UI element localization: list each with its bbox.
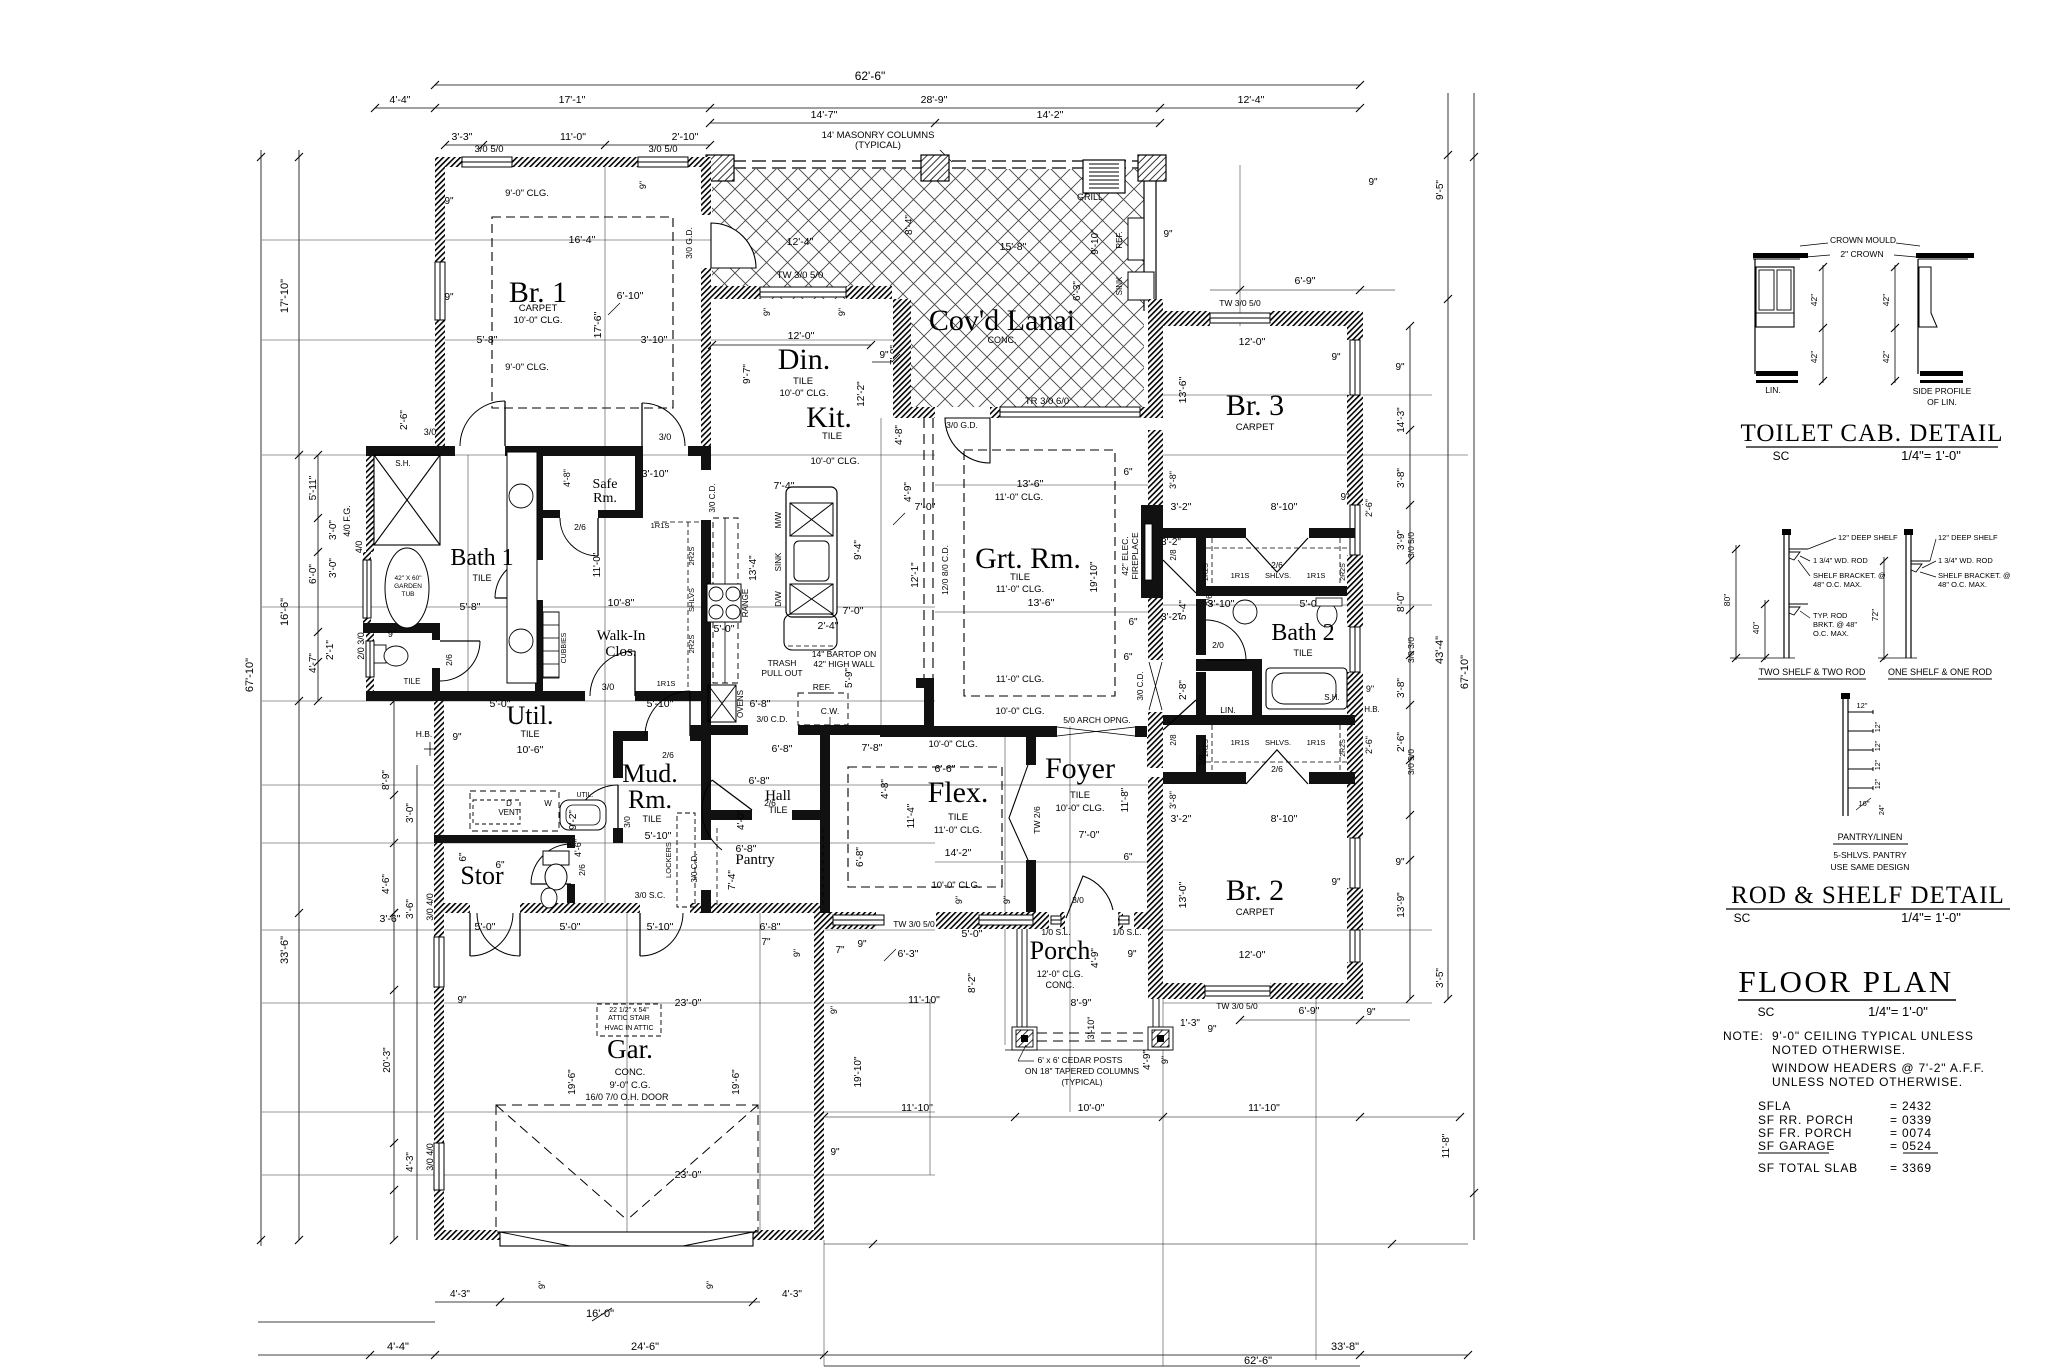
- svg-text:5'-0": 5'-0": [962, 928, 983, 940]
- svg-text:14'-3": 14'-3": [1396, 407, 1407, 433]
- svg-text:4'-3": 4'-3": [405, 1152, 416, 1172]
- svg-text:43'-4": 43'-4": [1434, 636, 1446, 664]
- svg-text:3/0 4/0: 3/0 4/0: [425, 893, 435, 921]
- svg-text:11'-0" CLG.: 11'-0" CLG.: [934, 825, 982, 836]
- svg-text:7": 7": [761, 937, 771, 948]
- svg-text:12'-0" CLG.: 12'-0" CLG.: [1037, 969, 1083, 979]
- svg-text:12'-2": 12'-2": [856, 381, 867, 407]
- svg-text:4'-8": 4'-8": [880, 779, 891, 799]
- svg-text:4'-6": 4'-6": [381, 874, 392, 894]
- svg-text:6": 6": [1123, 652, 1133, 663]
- svg-text:SHLVS.: SHLVS.: [1265, 571, 1291, 580]
- svg-text:42" X 60": 42" X 60": [394, 575, 422, 582]
- svg-text:Flex.: Flex.: [928, 776, 989, 809]
- svg-text:9": 9": [954, 896, 964, 904]
- svg-text:9": 9": [388, 629, 396, 639]
- svg-text:9": 9": [1163, 229, 1173, 240]
- svg-text:67'-10": 67'-10": [244, 658, 256, 692]
- svg-text:2R2S: 2R2S: [1203, 563, 1210, 581]
- svg-text:PULL OUT: PULL OUT: [761, 668, 802, 678]
- svg-text:TW 3/0 5/0: TW 3/0 5/0: [893, 919, 935, 929]
- svg-text:CUBBIES: CUBBIES: [561, 632, 568, 663]
- svg-text:SHLVS: SHLVS: [687, 588, 696, 612]
- svg-text:6'-0": 6'-0": [308, 564, 319, 584]
- svg-text:12'-1": 12'-1": [910, 562, 921, 588]
- svg-text:3/0 5/0: 3/0 5/0: [1406, 749, 1416, 775]
- svg-text:1R1S: 1R1S: [1231, 571, 1250, 580]
- svg-text:C.W.: C.W.: [821, 706, 839, 716]
- svg-text:Porch: Porch: [1030, 936, 1091, 965]
- svg-text:15'-8": 15'-8": [1000, 241, 1027, 253]
- svg-text:ON 18" TAPERED COLUMNS: ON 18" TAPERED COLUMNS: [1025, 1066, 1140, 1076]
- svg-text:4/0: 4/0: [354, 541, 364, 554]
- svg-text:= 0524: = 0524: [1890, 1139, 1932, 1153]
- svg-text:6": 6": [495, 860, 505, 871]
- svg-text:W: W: [544, 799, 552, 808]
- svg-text:TWO SHELF & TWO ROD: TWO SHELF & TWO ROD: [1759, 667, 1866, 677]
- svg-text:CARPET: CARPET: [1236, 907, 1275, 918]
- svg-text:5'-0": 5'-0": [560, 921, 581, 933]
- svg-text:13'-0": 13'-0": [1177, 881, 1189, 908]
- svg-text:16/0 7/0 O.H. DOOR: 16/0 7/0 O.H. DOOR: [585, 1092, 669, 1102]
- svg-text:5'-10": 5'-10": [647, 698, 674, 710]
- svg-text:Mud.: Mud.: [622, 759, 678, 788]
- svg-text:1 3/4" WD. ROD: 1 3/4" WD. ROD: [1938, 556, 1993, 565]
- svg-text:24": 24": [1879, 804, 1886, 815]
- svg-text:42" HIGH WALL: 42" HIGH WALL: [813, 659, 875, 669]
- svg-text:FLOOR PLAN: FLOOR PLAN: [1738, 964, 1953, 999]
- svg-text:ROD & SHELF DETAIL: ROD & SHELF DETAIL: [1731, 882, 2005, 909]
- svg-text:12'-0": 12'-0": [788, 330, 815, 342]
- svg-text:3'-8": 3'-8": [1396, 468, 1407, 488]
- svg-text:24'-6": 24'-6": [631, 1341, 659, 1353]
- svg-text:5/0 ARCH OPNG.: 5/0 ARCH OPNG.: [1063, 715, 1131, 725]
- svg-text:12'-4": 12'-4": [1238, 94, 1265, 106]
- svg-text:GARDEN: GARDEN: [394, 583, 422, 590]
- svg-text:9'-2": 9'-2": [568, 810, 579, 830]
- svg-text:2R2S: 2R2S: [687, 635, 696, 654]
- svg-text:2'-6": 2'-6": [1364, 499, 1374, 517]
- svg-text:9": 9": [879, 350, 889, 361]
- svg-text:3'-10": 3'-10": [1208, 598, 1235, 610]
- svg-text:TILE: TILE: [520, 729, 539, 739]
- svg-text:3'-8": 3'-8": [1168, 471, 1178, 489]
- svg-text:9": 9": [1340, 492, 1350, 503]
- svg-text:5'-8": 5'-8": [477, 334, 498, 346]
- svg-text:6'-8": 6'-8": [749, 775, 770, 787]
- svg-text:3/0 5/0: 3/0 5/0: [1406, 532, 1416, 558]
- svg-text:4'-6": 4'-6": [573, 839, 583, 857]
- svg-text:3/0 C.D.: 3/0 C.D.: [708, 483, 717, 512]
- svg-text:REF.: REF.: [1115, 231, 1124, 248]
- svg-text:33'-6": 33'-6": [279, 936, 291, 964]
- svg-text:1'-3": 1'-3": [1180, 1018, 1200, 1029]
- svg-text:Bath 1: Bath 1: [450, 545, 513, 571]
- svg-text:7'-0": 7'-0": [1079, 829, 1100, 841]
- svg-text:9'-0" C.G.: 9'-0" C.G.: [609, 1080, 650, 1091]
- svg-text:6": 6": [458, 852, 469, 862]
- svg-text:CONC.: CONC.: [615, 1067, 646, 1078]
- svg-text:(TYPICAL): (TYPICAL): [1061, 1077, 1102, 1087]
- svg-text:H.B.: H.B.: [416, 729, 433, 739]
- svg-text:CARPET: CARPET: [519, 303, 558, 314]
- svg-text:14" BARTOP ON: 14" BARTOP ON: [812, 649, 876, 659]
- svg-text:4'-8": 4'-8": [562, 469, 572, 487]
- svg-text:9": 9": [1366, 1007, 1376, 1018]
- svg-text:TILE: TILE: [1293, 648, 1312, 658]
- svg-text:1/4"= 1'-0": 1/4"= 1'-0": [1901, 448, 1961, 463]
- svg-text:48" O.C. MAX.: 48" O.C. MAX.: [1938, 580, 1987, 589]
- svg-text:2R2S: 2R2S: [1203, 739, 1210, 757]
- svg-text:7": 7": [835, 945, 845, 956]
- svg-text:2R2S: 2R2S: [1340, 739, 1347, 757]
- svg-text:67'-10": 67'-10": [1459, 655, 1471, 689]
- svg-text:9": 9": [638, 181, 648, 189]
- svg-text:3'-2": 3'-2": [1171, 813, 1192, 825]
- svg-text:6'-8": 6'-8": [760, 921, 781, 933]
- svg-text:PANTRY/LINEN: PANTRY/LINEN: [1838, 832, 1903, 842]
- svg-text:9": 9": [444, 196, 454, 207]
- svg-text:14'-7": 14'-7": [811, 109, 838, 121]
- svg-text:GRILL: GRILL: [1077, 192, 1103, 202]
- svg-text:WINDOW HEADERS @ 7'-2" A.F.F.: WINDOW HEADERS @ 7'-2" A.F.F.: [1772, 1061, 1985, 1075]
- svg-text:TILE: TILE: [768, 805, 787, 815]
- svg-text:9": 9": [1160, 1056, 1170, 1064]
- svg-text:22 1/2" x 54": 22 1/2" x 54": [609, 1007, 649, 1014]
- svg-text:16'-6": 16'-6": [279, 598, 291, 626]
- svg-text:8'-9": 8'-9": [381, 770, 392, 790]
- svg-text:13'-6": 13'-6": [1177, 376, 1189, 403]
- svg-text:RANGE: RANGE: [741, 589, 750, 617]
- svg-text:2'-1": 2'-1": [325, 640, 336, 660]
- svg-text:Util.: Util.: [507, 701, 554, 730]
- svg-text:10'-0" CLG.: 10'-0" CLG.: [931, 880, 980, 891]
- svg-text:Rm.: Rm.: [628, 785, 672, 814]
- svg-text:11'-8": 11'-8": [1441, 1133, 1452, 1158]
- svg-text:12'-0": 12'-0": [1239, 336, 1266, 348]
- svg-text:4'-4": 4'-4": [387, 1341, 409, 1353]
- svg-text:3'-6": 3'-6": [380, 913, 401, 925]
- svg-text:SIDE PROFILE: SIDE PROFILE: [1913, 386, 1972, 396]
- svg-text:SHELF BRACKET. @: SHELF BRACKET. @: [1938, 571, 2011, 580]
- svg-text:2/6: 2/6: [574, 522, 586, 532]
- svg-text:6' x 6' CEDAR POSTS: 6' x 6' CEDAR POSTS: [1038, 1055, 1123, 1065]
- svg-text:HVAC IN ATTIC: HVAC IN ATTIC: [604, 1025, 653, 1032]
- svg-text:H.B.: H.B.: [1364, 705, 1380, 714]
- svg-text:TW 3/0 5/0: TW 3/0 5/0: [777, 270, 823, 281]
- svg-text:4'-4": 4'-4": [390, 94, 411, 106]
- svg-text:3/0: 3/0: [622, 816, 632, 828]
- svg-text:ONE SHELF & ONE ROD: ONE SHELF & ONE ROD: [1888, 667, 1993, 677]
- svg-text:6'-6": 6'-6": [935, 763, 956, 775]
- svg-text:10'-0" CLG.: 10'-0" CLG.: [1055, 803, 1104, 814]
- svg-text:5'-0": 5'-0": [490, 698, 511, 710]
- svg-text:3'-2": 3'-2": [1171, 501, 1192, 513]
- svg-text:12": 12": [1856, 701, 1867, 710]
- svg-text:TILE: TILE: [404, 677, 421, 686]
- svg-text:9": 9": [857, 939, 867, 950]
- svg-text:Cov'd Lanai: Cov'd Lanai: [929, 304, 1075, 337]
- svg-text:3/0 3/0: 3/0 3/0: [1406, 637, 1416, 663]
- svg-text:3/0 G.D.: 3/0 G.D.: [946, 420, 978, 430]
- svg-text:8'-9": 8'-9": [1071, 997, 1092, 1009]
- svg-text:TRASH: TRASH: [768, 658, 797, 668]
- svg-text:3'-2": 3'-2": [1161, 537, 1181, 548]
- svg-text:SFLA: SFLA: [1758, 1099, 1791, 1113]
- svg-text:10'-0" CLG.: 10'-0" CLG.: [995, 706, 1044, 717]
- svg-text:TW 2/6: TW 2/6: [1032, 806, 1042, 834]
- svg-text:12": 12": [1875, 759, 1882, 770]
- svg-text:9": 9": [452, 732, 462, 743]
- svg-text:6'-3": 6'-3": [898, 948, 919, 960]
- svg-text:9": 9": [1331, 352, 1341, 363]
- svg-text:4'-3": 4'-3": [782, 1289, 802, 1300]
- svg-text:23'-0": 23'-0": [675, 1169, 702, 1181]
- svg-text:OVENS: OVENS: [736, 690, 745, 718]
- svg-text:3/0: 3/0: [1072, 895, 1084, 905]
- svg-text:TILE: TILE: [472, 573, 491, 583]
- svg-text:3/0: 3/0: [659, 432, 672, 442]
- svg-text:3'-8": 3'-8": [1396, 678, 1407, 698]
- svg-text:Hall: Hall: [765, 788, 791, 804]
- svg-text:9": 9": [1002, 896, 1012, 904]
- svg-text:9'-5": 9'-5": [1435, 180, 1446, 200]
- svg-text:16'-4": 16'-4": [569, 234, 596, 246]
- svg-text:9": 9": [837, 308, 847, 316]
- svg-text:17'-10": 17'-10": [279, 279, 291, 313]
- svg-text:SF TOTAL SLAB: SF TOTAL SLAB: [1758, 1161, 1858, 1175]
- svg-text:3/0 C.D.: 3/0 C.D.: [690, 853, 699, 882]
- svg-text:20'-3": 20'-3": [382, 1047, 393, 1073]
- svg-text:13'-6": 13'-6": [1017, 478, 1044, 490]
- svg-text:9'-0" CLG.: 9'-0" CLG.: [505, 188, 549, 199]
- svg-text:4'-9": 4'-9": [1090, 948, 1101, 968]
- svg-text:6'-8": 6'-8": [736, 843, 757, 855]
- svg-text:Rm.: Rm.: [593, 491, 617, 506]
- svg-text:11'-10": 11'-10": [908, 994, 940, 1006]
- svg-text:9": 9": [1366, 684, 1374, 694]
- svg-text:LIN.: LIN.: [1220, 705, 1236, 715]
- svg-text:3'-6": 3'-6": [405, 899, 416, 919]
- svg-text:9": 9": [537, 1281, 547, 1289]
- svg-text:UNLESS NOTED OTHERWISE.: UNLESS NOTED OTHERWISE.: [1772, 1075, 1963, 1089]
- svg-text:9": 9": [762, 308, 772, 316]
- svg-text:6'-9": 6'-9": [1295, 275, 1316, 287]
- svg-text:2/6: 2/6: [577, 864, 587, 876]
- svg-text:4'-7": 4'-7": [308, 653, 319, 673]
- svg-text:3/0 G.D.: 3/0 G.D.: [684, 227, 694, 259]
- svg-text:Gar.: Gar.: [607, 1034, 653, 1064]
- svg-text:= 0339: = 0339: [1890, 1113, 1932, 1127]
- svg-text:SF RR. PORCH: SF RR. PORCH: [1758, 1113, 1854, 1127]
- svg-text:9": 9": [457, 995, 467, 1006]
- svg-text:6'-8": 6'-8": [750, 698, 771, 710]
- svg-text:SC: SC: [1773, 449, 1790, 463]
- svg-text:17'-6": 17'-6": [592, 311, 604, 338]
- svg-text:11'-0" CLG.: 11'-0" CLG.: [995, 492, 1043, 503]
- svg-text:TILE: TILE: [1010, 572, 1030, 583]
- svg-text:2'-8": 2'-8": [1178, 680, 1189, 700]
- svg-text:9'-0" CEILING TYPICAL UNLESS: 9'-0" CEILING TYPICAL UNLESS: [1772, 1029, 1974, 1043]
- svg-text:6'-8": 6'-8": [772, 743, 793, 755]
- svg-text:2/8: 2/8: [1169, 734, 1178, 746]
- svg-text:5'-11": 5'-11": [308, 475, 319, 500]
- svg-text:12": 12": [1875, 740, 1882, 751]
- svg-text:7'-0": 7'-0": [843, 605, 864, 617]
- svg-text:11'-0" CLG.: 11'-0" CLG.: [996, 584, 1044, 595]
- svg-text:REF.: REF.: [813, 682, 831, 692]
- svg-text:3/0 5/0: 3/0 5/0: [648, 144, 677, 155]
- svg-text:11'-0" CLG.: 11'-0" CLG.: [996, 674, 1044, 685]
- svg-text:S.H.: S.H.: [395, 459, 411, 468]
- svg-text:CARPET: CARPET: [1236, 422, 1275, 433]
- svg-text:1/4"= 1'-0": 1/4"= 1'-0": [1901, 910, 1961, 925]
- svg-text:Grt. Rm.: Grt. Rm.: [975, 542, 1081, 575]
- svg-text:72": 72": [1870, 609, 1880, 621]
- svg-text:SHLVS.: SHLVS.: [1265, 738, 1291, 747]
- svg-text:23'-0": 23'-0": [675, 997, 702, 1009]
- svg-text:8'-10": 8'-10": [1271, 501, 1298, 513]
- svg-text:62'-6": 62'-6": [1244, 1355, 1272, 1367]
- svg-text:CONC.: CONC.: [1046, 980, 1075, 990]
- svg-text:3'-10": 3'-10": [642, 468, 669, 480]
- svg-text:Kit.: Kit.: [806, 401, 852, 434]
- svg-text:10'-0": 10'-0": [1078, 1102, 1105, 1114]
- svg-text:6": 6": [1128, 617, 1138, 628]
- svg-text:4'-9": 4'-9": [903, 482, 914, 502]
- svg-text:80": 80": [1722, 594, 1732, 606]
- svg-text:42": 42": [1881, 351, 1891, 363]
- svg-text:3/0: 3/0: [424, 427, 437, 437]
- svg-text:11'-8": 11'-8": [1120, 787, 1131, 812]
- svg-text:Safe: Safe: [593, 477, 618, 492]
- svg-text:4'-3": 4'-3": [450, 1289, 470, 1300]
- svg-text:12'-0": 12'-0": [1239, 949, 1266, 961]
- svg-text:CROWN MOULD: CROWN MOULD: [1830, 235, 1896, 245]
- svg-text:6": 6": [1123, 852, 1133, 863]
- svg-text:OF LIN.: OF LIN.: [1927, 397, 1957, 407]
- svg-text:14'-2": 14'-2": [945, 847, 972, 859]
- svg-text:D/W: D/W: [774, 591, 783, 607]
- svg-text:6": 6": [1123, 467, 1133, 478]
- svg-text:42": 42": [1809, 294, 1819, 306]
- svg-text:10'-0" CLG.: 10'-0" CLG.: [928, 739, 977, 750]
- svg-text:11'-4": 11'-4": [906, 803, 917, 828]
- svg-text:3'-5": 3'-5": [1435, 968, 1446, 988]
- svg-text:SINK: SINK: [1115, 276, 1124, 295]
- svg-text:9": 9": [830, 1147, 840, 1158]
- svg-text:Walk-In: Walk-In: [597, 628, 646, 644]
- svg-text:SF GARAGE: SF GARAGE: [1758, 1139, 1835, 1153]
- svg-text:10'-0" CLG.: 10'-0" CLG.: [513, 315, 562, 326]
- svg-text:LIN.: LIN.: [1765, 385, 1781, 395]
- svg-text:7'-8": 7'-8": [862, 742, 883, 754]
- svg-text:ATTIC STAIR: ATTIC STAIR: [608, 1015, 650, 1022]
- svg-text:12'-4": 12'-4": [787, 236, 814, 248]
- svg-text:3/0 C.D.: 3/0 C.D.: [756, 714, 787, 724]
- svg-text:4'-9": 4'-9": [1142, 1050, 1153, 1070]
- svg-text:12": 12": [1875, 721, 1882, 732]
- svg-text:2'-10": 2'-10": [672, 131, 699, 143]
- svg-text:12" DEEP SHELF: 12" DEEP SHELF: [1938, 533, 1998, 542]
- svg-text:2R2S: 2R2S: [1340, 563, 1347, 581]
- svg-text:9": 9": [1127, 949, 1137, 960]
- svg-text:10'-8": 10'-8": [608, 597, 635, 609]
- svg-text:= 3369: = 3369: [1890, 1161, 1932, 1175]
- svg-text:2/0 3/0: 2/0 3/0: [356, 632, 366, 660]
- svg-text:2'-6": 2'-6": [1364, 736, 1374, 754]
- svg-text:2/6: 2/6: [1271, 764, 1283, 774]
- svg-text:1R1S: 1R1S: [1231, 738, 1250, 747]
- svg-text:6'-8": 6'-8": [855, 847, 866, 867]
- svg-text:Clos.: Clos.: [605, 644, 636, 660]
- svg-text:19'-10": 19'-10": [1089, 561, 1100, 592]
- svg-text:USE SAME DESIGN: USE SAME DESIGN: [1831, 862, 1910, 872]
- svg-text:6'-9": 6'-9": [1299, 1005, 1320, 1017]
- svg-text:TUB: TUB: [402, 591, 415, 598]
- svg-text:5-SHLVS. PANTRY: 5-SHLVS. PANTRY: [1833, 850, 1907, 860]
- svg-text:5'-4": 5'-4": [1178, 600, 1189, 620]
- svg-text:3'-3": 3'-3": [452, 131, 473, 143]
- svg-text:2'-6": 2'-6": [1396, 732, 1407, 752]
- svg-text:19'-10": 19'-10": [853, 1056, 864, 1087]
- svg-text:14'-2": 14'-2": [1037, 109, 1064, 121]
- svg-text:6'-10": 6'-10": [617, 290, 644, 302]
- svg-text:12/0 8/0 C.D.: 12/0 8/0 C.D.: [940, 545, 950, 595]
- svg-text:3/0 5/0: 3/0 5/0: [474, 144, 503, 155]
- svg-text:7'-4": 7'-4": [727, 870, 738, 890]
- svg-text:5'-9": 5'-9": [844, 668, 855, 688]
- svg-text:2/6: 2/6: [444, 654, 454, 666]
- svg-text:1/4"= 1'-0": 1/4"= 1'-0": [1868, 1004, 1928, 1019]
- svg-text:1R1S: 1R1S: [651, 521, 670, 530]
- svg-text:9'-0" CLG.: 9'-0" CLG.: [505, 362, 549, 373]
- svg-text:11'-10": 11'-10": [1248, 1102, 1280, 1114]
- svg-text:9'-7": 9'-7": [742, 364, 753, 384]
- svg-text:4'-8": 4'-8": [894, 425, 905, 445]
- svg-text:NOTED OTHERWISE.: NOTED OTHERWISE.: [1772, 1043, 1906, 1057]
- svg-text:9": 9": [1395, 362, 1405, 373]
- svg-text:Din.: Din.: [778, 343, 831, 376]
- svg-text:Foyer: Foyer: [1045, 752, 1115, 785]
- svg-text:S.H.: S.H.: [1324, 693, 1340, 702]
- svg-text:SF FR. PORCH: SF FR. PORCH: [1758, 1126, 1852, 1140]
- svg-text:5'-8": 5'-8": [460, 601, 481, 613]
- svg-text:1R1S: 1R1S: [1307, 571, 1326, 580]
- svg-text:BRKT. @ 48": BRKT. @ 48": [1813, 620, 1857, 629]
- svg-text:3/0 S.C.: 3/0 S.C.: [635, 890, 666, 900]
- svg-text:3'-0": 3'-0": [328, 520, 339, 540]
- svg-text:48" O.C. MAX.: 48" O.C. MAX.: [1813, 580, 1862, 589]
- svg-text:9'-4": 9'-4": [853, 540, 864, 560]
- svg-text:8'-2": 8'-2": [967, 973, 978, 993]
- svg-text:TW 3/0 5/0: TW 3/0 5/0: [1216, 1001, 1258, 1011]
- svg-text:Br. 3: Br. 3: [1226, 389, 1284, 422]
- svg-text:8'-10": 8'-10": [1271, 813, 1298, 825]
- svg-text:1R1S: 1R1S: [657, 679, 676, 688]
- svg-text:SC: SC: [1758, 1005, 1775, 1019]
- svg-text:3'-0": 3'-0": [405, 803, 416, 823]
- svg-text:2R2S: 2R2S: [687, 547, 696, 566]
- svg-text:D: D: [506, 799, 512, 808]
- svg-text:9": 9": [444, 292, 454, 303]
- svg-text:2'-4": 2'-4": [818, 620, 839, 632]
- svg-text:17'-1": 17'-1": [559, 94, 586, 106]
- svg-text:5'-10": 5'-10": [647, 921, 674, 933]
- svg-text:3'-10": 3'-10": [1086, 1017, 1096, 1040]
- svg-text:5'-0": 5'-0": [714, 623, 735, 635]
- svg-text:SHELF BRACKET. @: SHELF BRACKET. @: [1813, 571, 1886, 580]
